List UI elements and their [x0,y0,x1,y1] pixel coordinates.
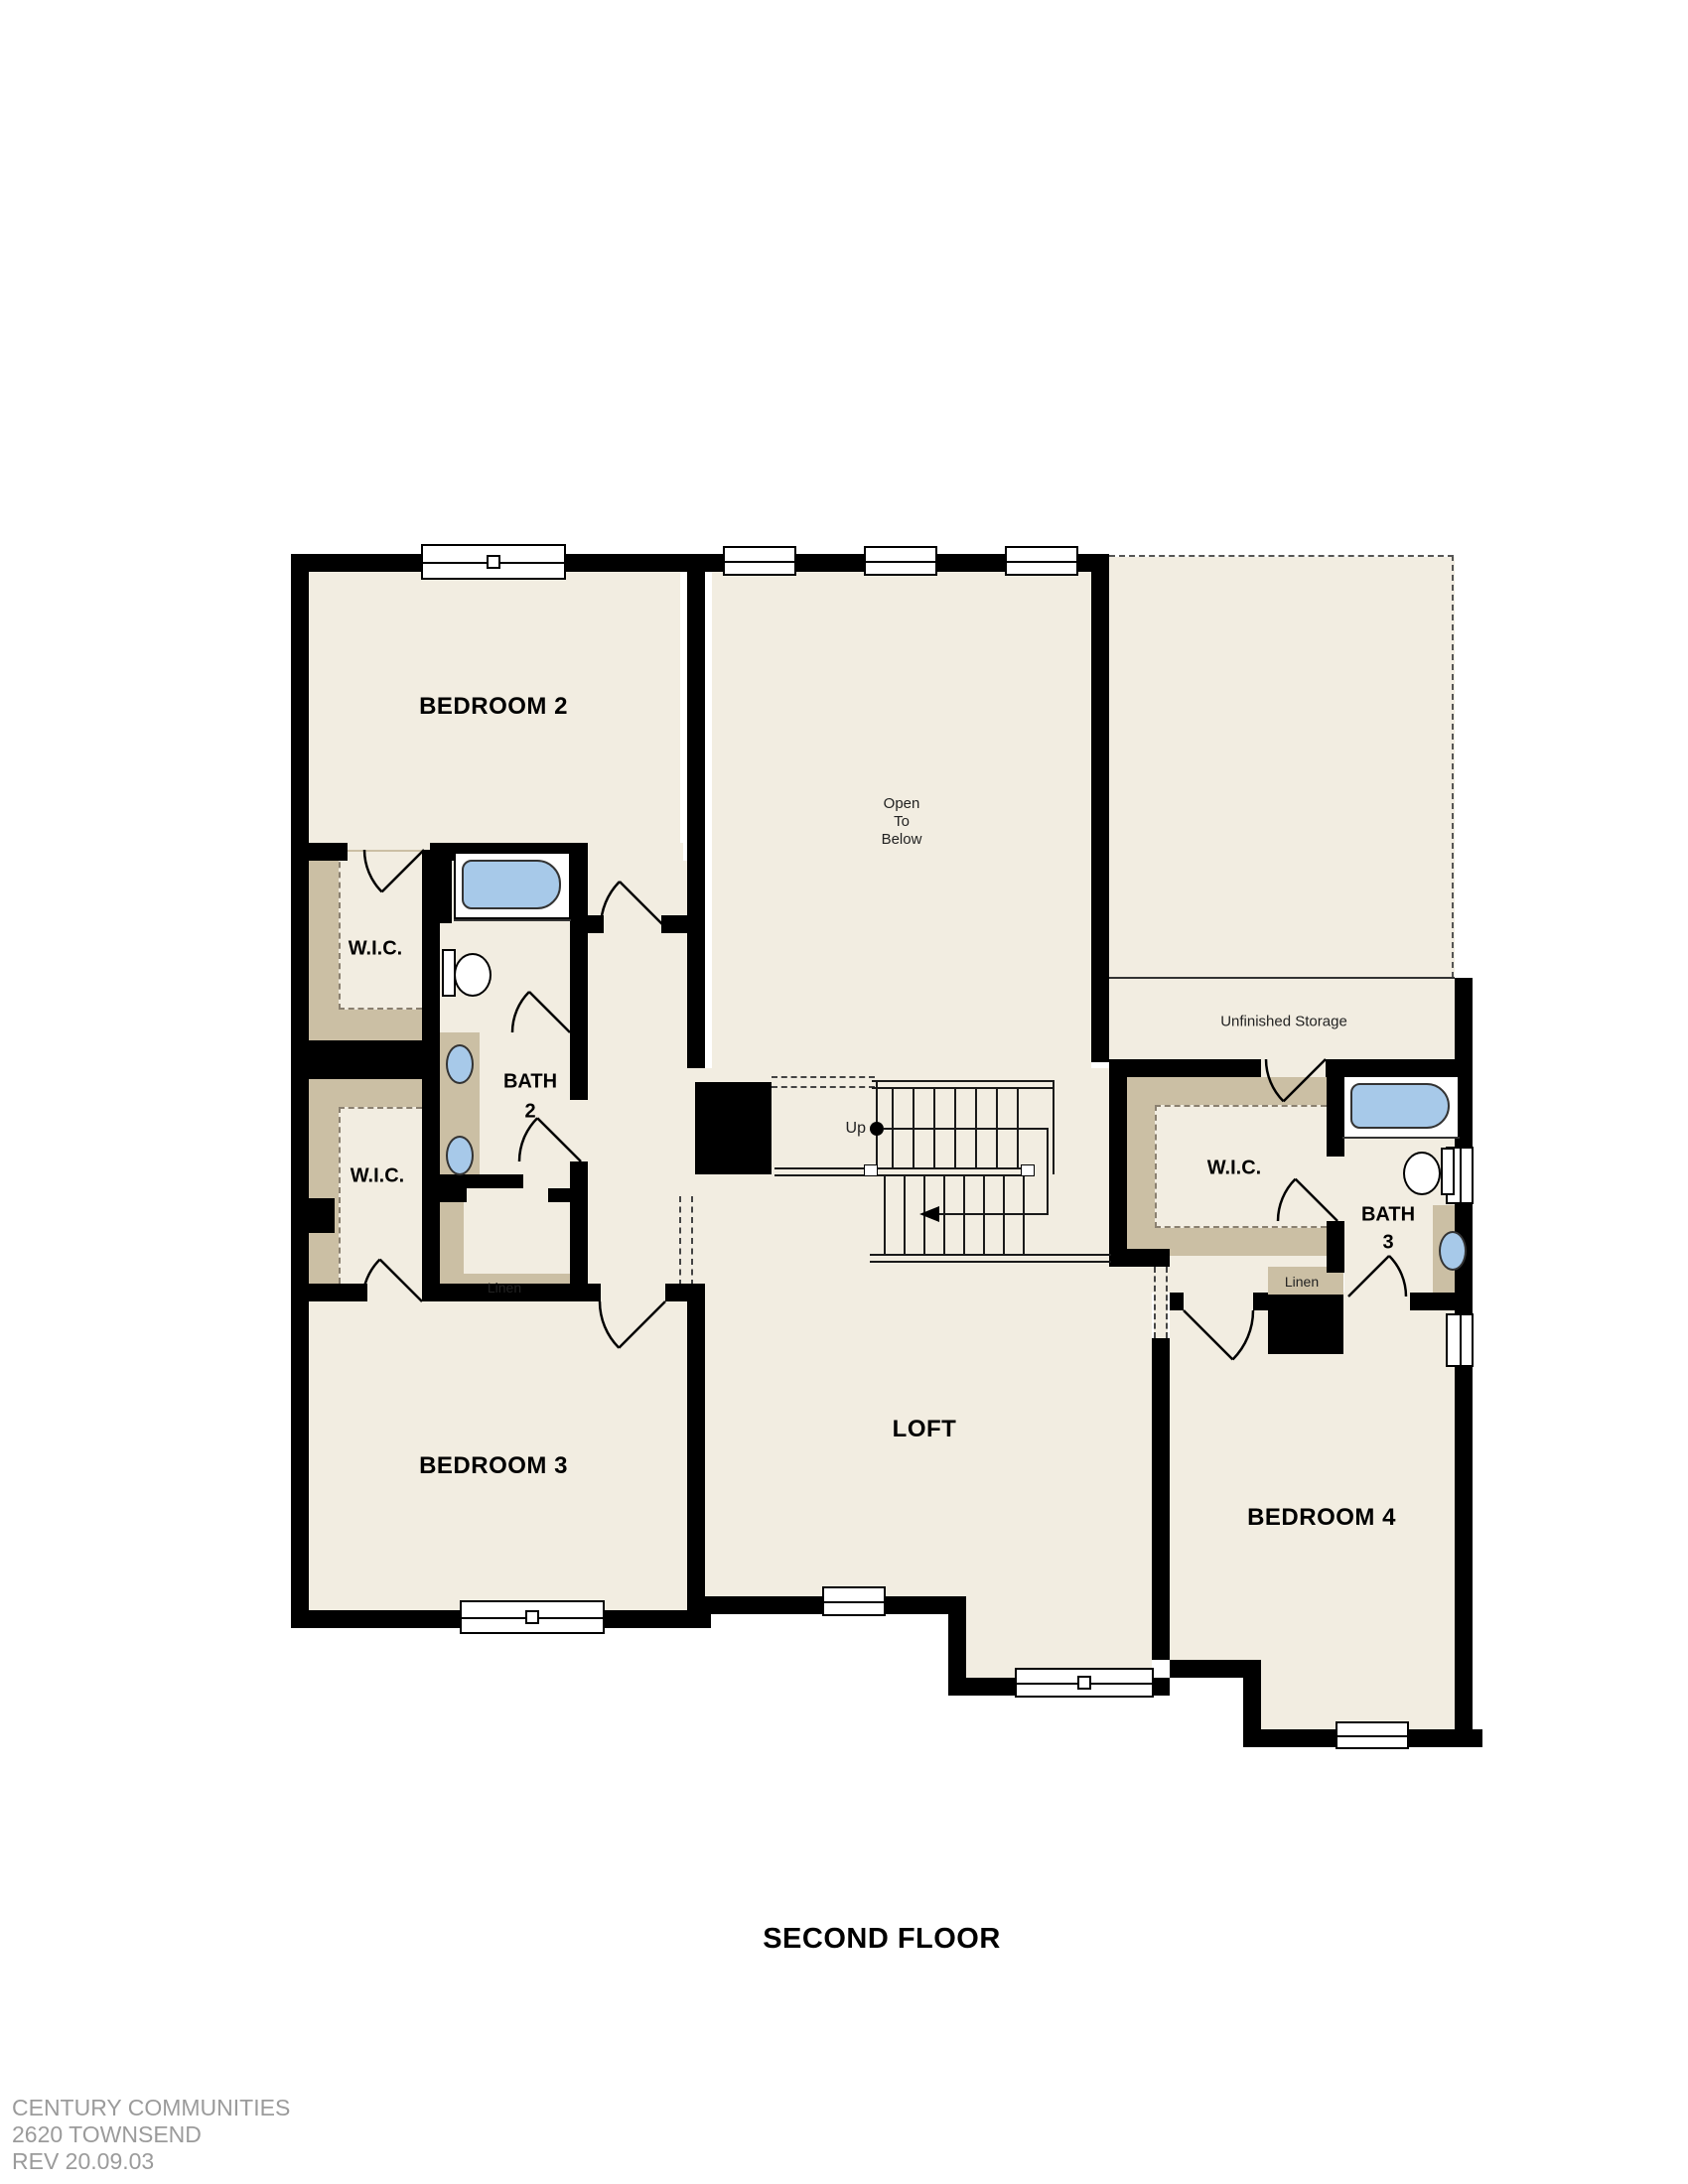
footer-plan-name: 2620 TOWNSEND [12,2121,290,2148]
window [1336,1721,1409,1749]
room-label-wic3: W.I.C. [1207,1158,1261,1180]
door-opening [1184,1293,1253,1310]
label-linen2: Linen [1285,1274,1319,1290]
stair-tread [884,1176,886,1254]
stair-rail [870,1254,1111,1256]
stair-rail [870,1261,1111,1263]
door [1278,1161,1337,1221]
wall [291,1284,367,1301]
wall [1268,1295,1343,1354]
stair-rail [872,1087,1055,1089]
bathtub-basin-icon [462,860,561,909]
stair-stringer [1053,1080,1055,1174]
room-label-bedroom2: BEDROOM 2 [419,693,568,721]
wall [687,554,705,1068]
stair-tread [1023,1176,1025,1254]
stair-railing-dashed [772,1076,875,1078]
wall [548,1188,588,1202]
footer: CENTURY COMMUNITIES 2620 TOWNSEND REV 20… [12,2095,290,2175]
label-linen1: Linen [488,1280,521,1296]
stair-path-line [1047,1128,1049,1215]
tub-edge-line [1342,1137,1460,1139]
roof-area-dashed-outline [1109,555,1454,978]
stair-tread [963,1176,965,1254]
window-mullion [525,1610,539,1624]
door [1266,1059,1326,1119]
wall [1109,1059,1127,1267]
loft-floor-lower [966,1596,1152,1678]
door-opening [601,1284,665,1301]
toilet-icon [1441,1148,1455,1195]
window-mullion [1077,1676,1091,1690]
wall [291,843,348,861]
wall [1327,1221,1344,1273]
stair-path-line [884,1128,1049,1130]
stair-railing-dashed [772,1086,875,1088]
wall [1410,1293,1473,1310]
sink-icon [446,1136,474,1175]
stair-post [1021,1164,1035,1176]
stair-post [864,1164,878,1176]
door [1348,1239,1406,1297]
wall [1253,1293,1268,1310]
stair-arrow-icon [919,1206,939,1222]
stair-tread [983,1176,985,1254]
window [1446,1313,1474,1367]
sink-icon [1439,1231,1467,1271]
wall [1455,1367,1473,1747]
toilet-bowl-icon [1403,1152,1441,1195]
wall [291,1198,335,1233]
wall [1170,1293,1184,1310]
stair-path-line [937,1213,1049,1215]
wall [291,1040,430,1079]
window [723,546,796,576]
bedroom4-wall-dashed-gap [1154,1267,1168,1338]
wall [1170,1660,1261,1678]
open-line1: Open [882,795,922,813]
storage-boundary-line [1109,977,1455,979]
wall [437,850,452,923]
label-unfinished-storage: Unfinished Storage [1220,1014,1347,1030]
wall [437,1188,467,1202]
wall [693,1596,948,1614]
door [512,975,570,1032]
room-label-bath3: BATH [1361,1204,1415,1227]
wall [1152,1338,1170,1660]
label-up: Up [820,1120,866,1138]
room-label-wic1: W.I.C. [349,938,402,961]
room-label-bedroom4: BEDROOM 4 [1247,1504,1396,1532]
window [1005,546,1078,576]
tub-edge-line [454,919,571,921]
footer-company: CENTURY COMMUNITIES [12,2095,290,2121]
stair-tread [904,1176,906,1254]
room-label-bath2-number: 2 [524,1101,535,1124]
room-label-bedroom3: BEDROOM 3 [419,1452,568,1480]
window [864,546,937,576]
stair-tread [1003,1176,1005,1254]
door [1184,1310,1253,1380]
wall-chase [695,1082,772,1174]
stair-rail [774,1167,1030,1169]
bedroom4-floor-lower [1261,1660,1455,1729]
wall [437,1174,523,1188]
window-mullion [487,555,500,569]
wall [570,843,588,1100]
loft-floor-edge [1109,1267,1152,1604]
plan-title: SECOND FLOOR [763,1923,1001,1956]
door [364,850,424,909]
wall [665,1284,705,1301]
open-line2: To [882,813,922,831]
wall [1109,1059,1261,1077]
door [362,1242,422,1301]
wall [1091,572,1109,1062]
open-line3: Below [882,831,922,849]
room-label-bath2: BATH [503,1071,557,1094]
sink-icon [446,1044,474,1084]
label-open-to-below: Open To Below [882,795,922,849]
room-label-loft: LOFT [893,1416,957,1443]
stair-direction-dot [870,1122,884,1136]
wall [1109,1249,1170,1267]
loft-railing-dashed [679,1196,693,1286]
stair-tread [943,1176,945,1254]
stair-rail [872,1080,1055,1082]
toilet-bowl-icon [454,953,492,997]
door [600,1301,665,1367]
floorplan-page: BEDROOM 2 BEDROOM 3 BEDROOM 4 LOFT W.I.C… [0,0,1688,2184]
room-label-wic2: W.I.C. [351,1165,404,1188]
door [601,863,665,927]
window [822,1586,886,1616]
wall [291,554,309,1628]
stair-rail [774,1174,1030,1176]
footer-revision: REV 20.09.03 [12,2148,290,2175]
wall [687,1301,705,1628]
bathtub-basin-icon [1350,1083,1450,1129]
wall [570,1161,588,1301]
room-label-bath3-number: 3 [1382,1232,1393,1255]
